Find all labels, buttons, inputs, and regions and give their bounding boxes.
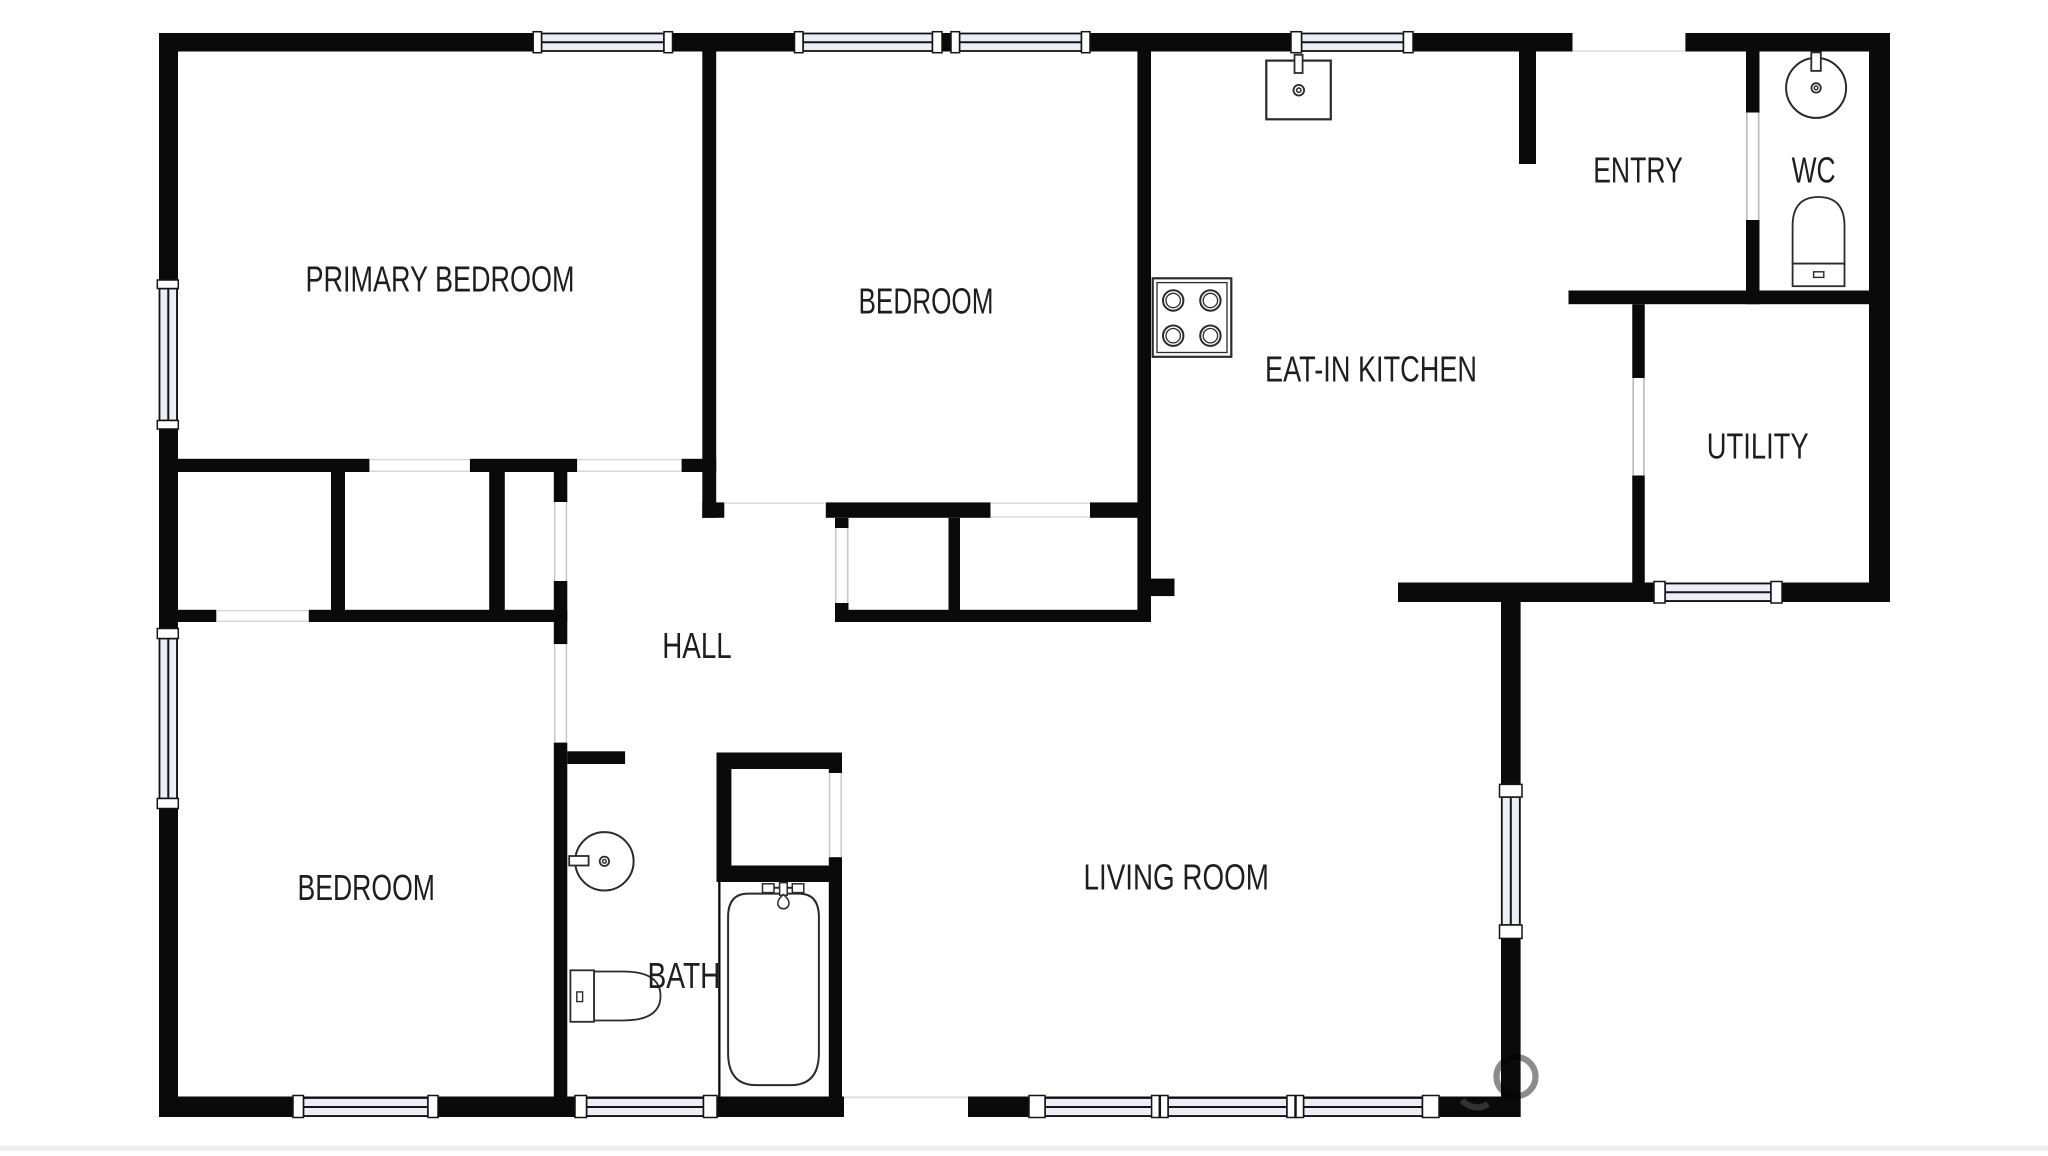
svg-text:LIVING ROOM: LIVING ROOM bbox=[1084, 857, 1269, 898]
svg-text:BEDROOM: BEDROOM bbox=[297, 867, 435, 908]
svg-text:BEDROOM: BEDROOM bbox=[859, 281, 994, 322]
svg-text:PRIMARY BEDROOM: PRIMARY BEDROOM bbox=[306, 259, 575, 300]
svg-text:HALL: HALL bbox=[662, 625, 732, 666]
svg-text:BATH: BATH bbox=[648, 955, 721, 996]
svg-text:EAT-IN KITCHEN: EAT-IN KITCHEN bbox=[1265, 349, 1477, 390]
svg-text:WC: WC bbox=[1792, 149, 1836, 190]
svg-text:ENTRY: ENTRY bbox=[1593, 149, 1683, 190]
svg-text:UTILITY: UTILITY bbox=[1707, 426, 1809, 467]
